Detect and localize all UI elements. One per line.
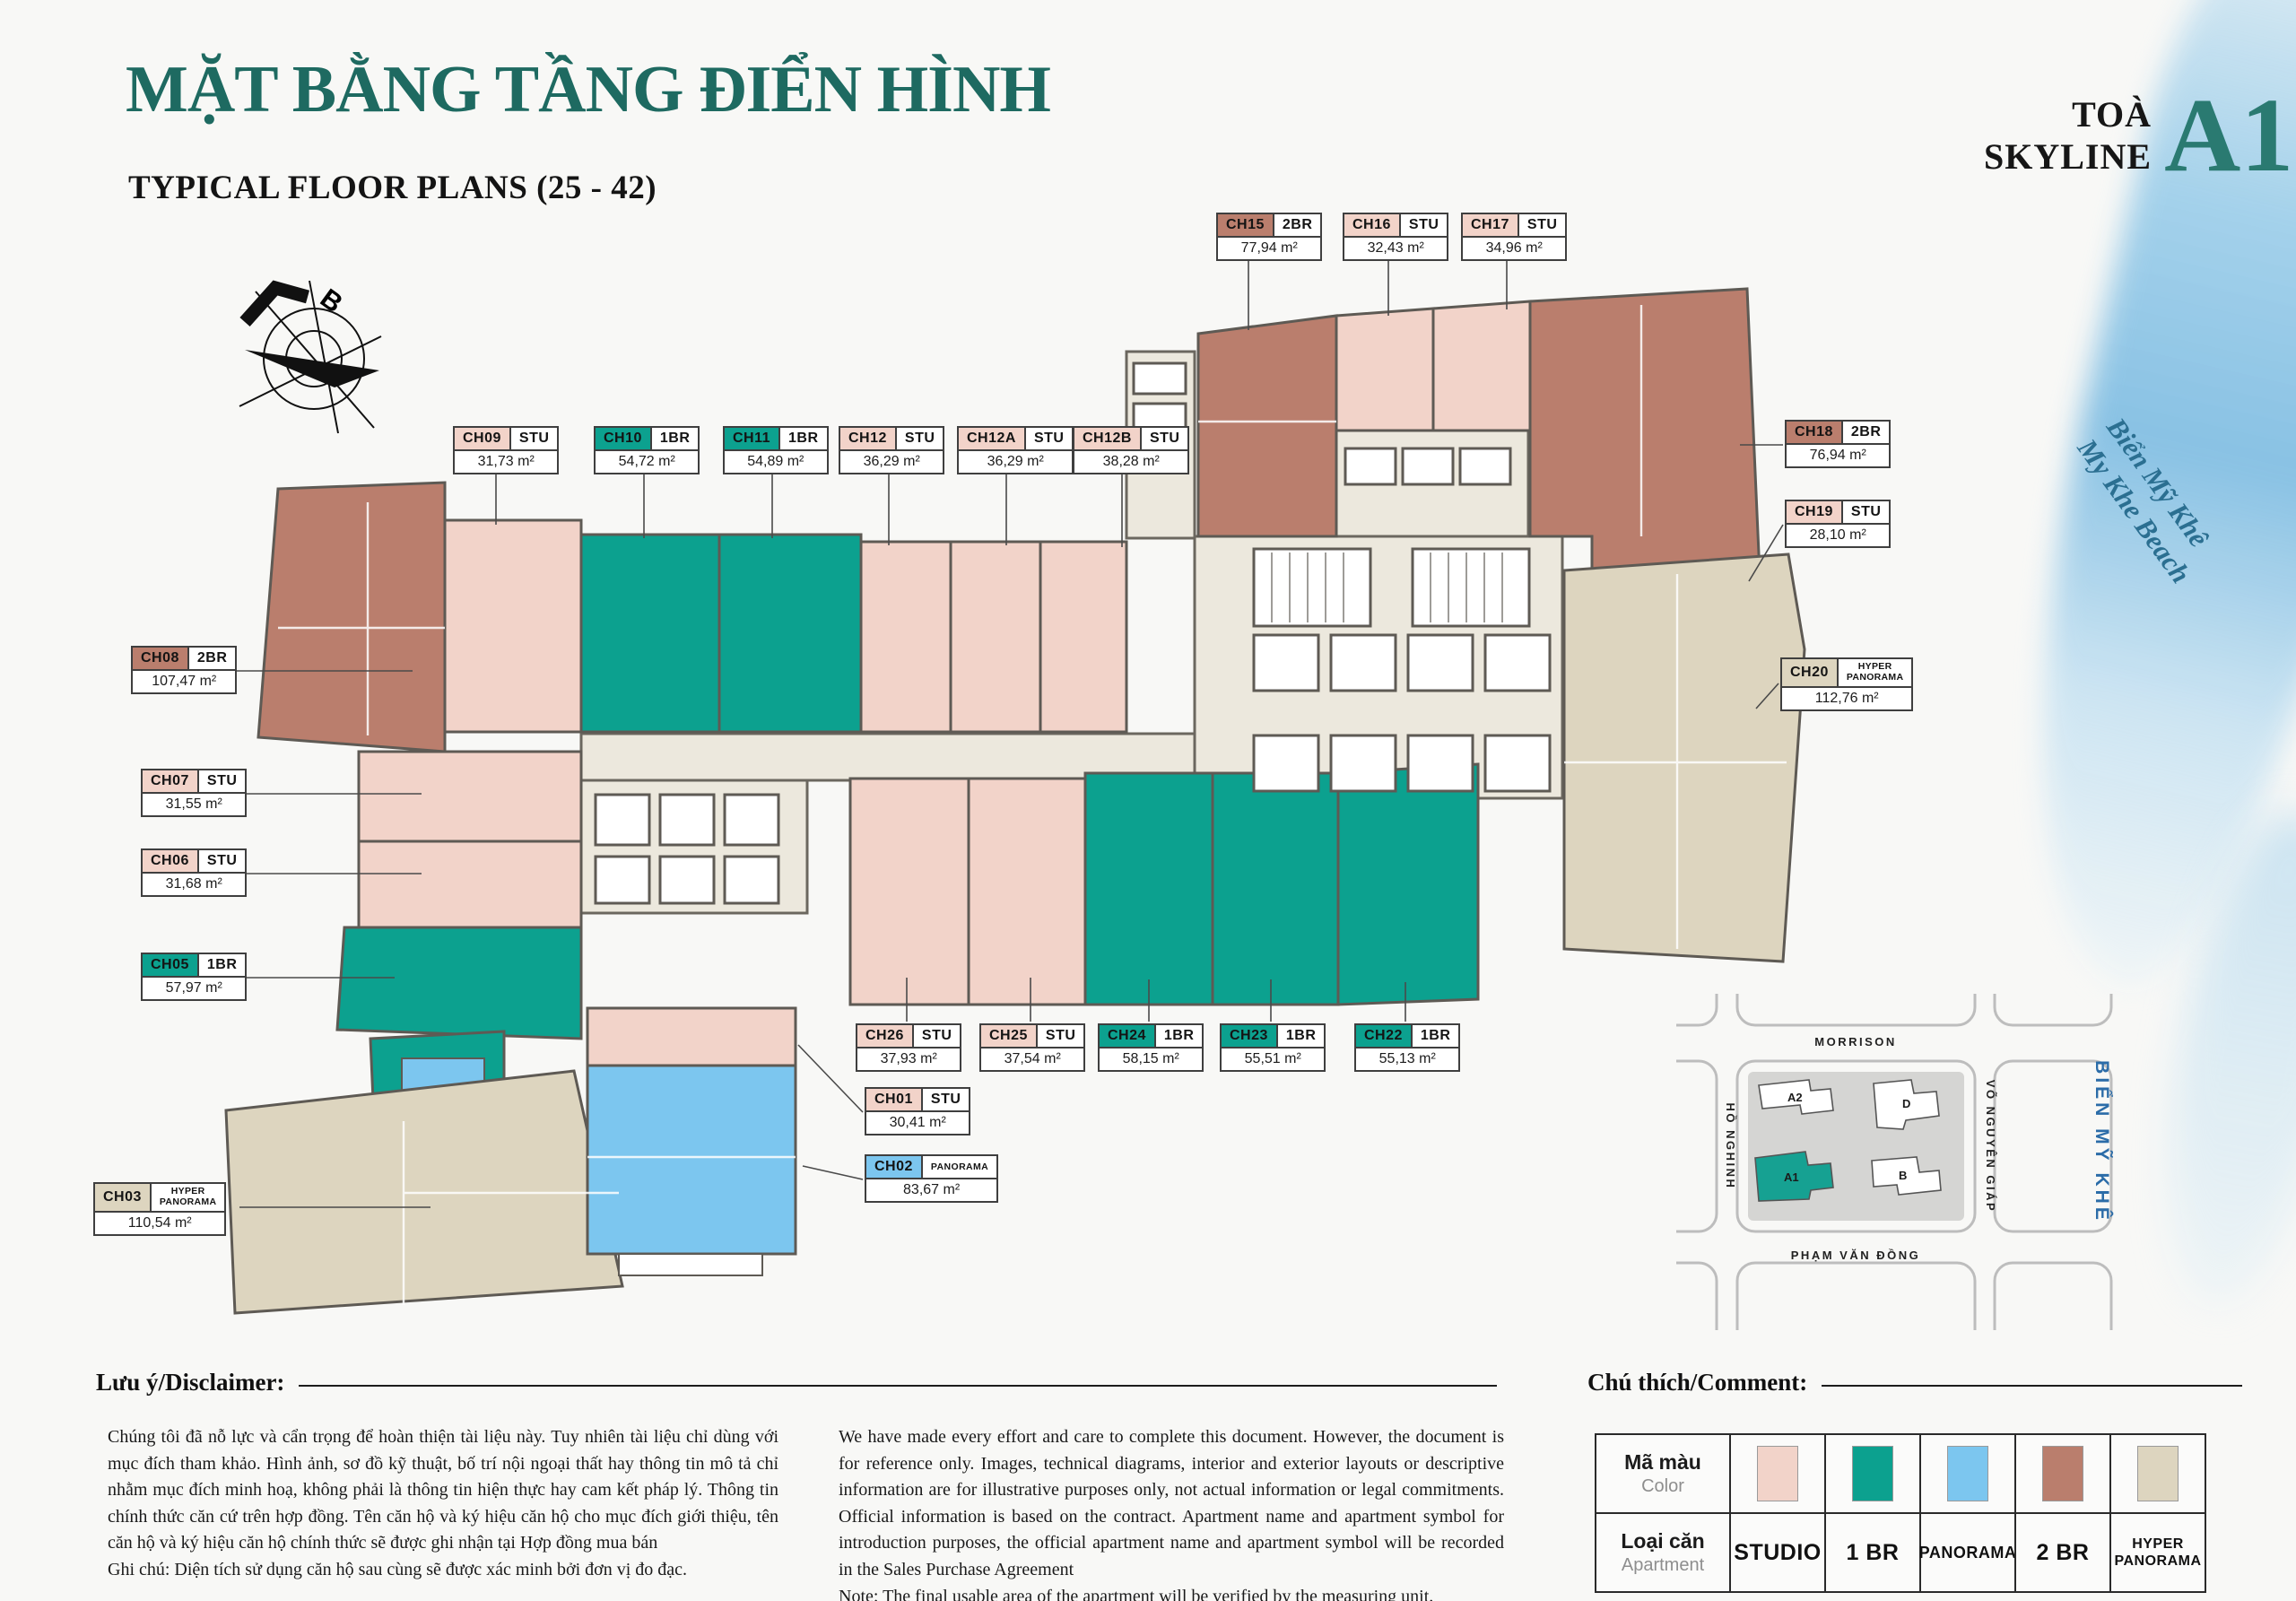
apartment-id: CH18 xyxy=(1787,422,1843,443)
location-minimap: A2 D A1 B MORRISON PHẠM VĂN ĐỒNG HỒ NGHI… xyxy=(1676,994,2125,1330)
legend-swatch-studio xyxy=(1757,1446,1798,1501)
legend-type-hyper: HYPER PANORAMA xyxy=(2109,1514,2205,1591)
unit-ch09 xyxy=(445,520,581,732)
apartment-area: 31,73 m² xyxy=(453,451,559,474)
legend-type-head: Loại căn Apartment xyxy=(1596,1514,1729,1591)
apartment-area: 37,54 m² xyxy=(979,1048,1085,1072)
apartment-area: 57,97 m² xyxy=(141,978,247,1001)
apartment-label-ch06: CH06STU31,68 m² xyxy=(141,848,247,897)
apartment-type: STU xyxy=(199,770,246,792)
apartment-area: 36,29 m² xyxy=(957,451,1074,474)
unit-ch26 xyxy=(850,779,969,1005)
apartment-id: CH12 xyxy=(840,428,897,449)
apartment-type: 2BR xyxy=(1843,422,1890,443)
legend-swatch-panorama xyxy=(1947,1446,1988,1501)
apartment-label-ch16: CH16STU32,43 m² xyxy=(1343,213,1448,261)
apartment-label-ch25: CH25STU37,54 m² xyxy=(979,1023,1085,1072)
apartment-area: 83,67 m² xyxy=(865,1179,998,1203)
apartment-id: CH16 xyxy=(1344,214,1401,236)
legend-type-studio: STUDIO xyxy=(1729,1514,1824,1591)
apartment-id: CH17 xyxy=(1463,214,1519,236)
legend-color-label-en: Color xyxy=(1641,1476,1684,1497)
street-pham-van-dong: PHẠM VĂN ĐỒNG xyxy=(1791,1249,1920,1262)
apartment-type: STU xyxy=(1401,214,1448,236)
apartment-label-ch17: CH17STU34,96 m² xyxy=(1461,213,1567,261)
apartment-id: CH02 xyxy=(866,1156,923,1178)
apartment-label-ch12: CH12STU36,29 m² xyxy=(839,426,944,474)
street-vo-nguyen-giap: VÕ NGUYÊN GIÁP xyxy=(1984,1080,1997,1213)
apartment-area: 38,28 m² xyxy=(1073,451,1189,474)
apartment-label-ch15: CH152BR77,94 m² xyxy=(1216,213,1322,261)
unit-ch07 xyxy=(359,752,581,841)
legend-type-2br: 2 BR xyxy=(2014,1514,2109,1591)
unit-ch15 xyxy=(1198,316,1336,536)
apartment-id: CH23 xyxy=(1222,1025,1278,1047)
apartment-label-ch24: CH241BR58,15 m² xyxy=(1098,1023,1204,1072)
apartment-id: CH15 xyxy=(1218,214,1274,236)
apartment-area: 54,72 m² xyxy=(594,451,700,474)
building-a1-label: A1 xyxy=(1784,1170,1799,1184)
apartment-id: CH01 xyxy=(866,1089,923,1110)
apartment-area: 32,43 m² xyxy=(1343,238,1448,261)
unit-ch17 xyxy=(1433,301,1530,431)
apartment-label-ch11: CH111BR54,89 m² xyxy=(723,426,829,474)
apartment-label-ch09: CH09STU31,73 m² xyxy=(453,426,559,474)
apartment-type: STU xyxy=(914,1025,961,1047)
apartment-area: 112,76 m² xyxy=(1780,688,1913,711)
apartment-id: CH12B xyxy=(1074,428,1142,449)
legend-swatch-hyper xyxy=(2137,1446,2179,1501)
apartment-area: 55,13 m² xyxy=(1354,1048,1460,1072)
apartment-type: 1BR xyxy=(780,428,827,449)
unit-ch16 xyxy=(1336,309,1433,431)
street-ho-nghinh: HỒ NGHINH xyxy=(1724,1103,1737,1190)
legend-swatch-1br xyxy=(1852,1446,1893,1501)
apartment-type: STU xyxy=(511,428,558,449)
apartment-id: CH06 xyxy=(143,850,199,872)
apartment-type: 1BR xyxy=(652,428,699,449)
unit-ch01 xyxy=(587,1008,796,1066)
disclaimer-note-en: Note: The final usable area of the apart… xyxy=(839,1584,1504,1601)
apartment-type: STU xyxy=(1142,428,1188,449)
apartment-label-ch12b: CH12BSTU38,28 m² xyxy=(1073,426,1189,474)
sea-label: BIỂN MỸ KHÊ xyxy=(2092,1060,2113,1223)
legend-type-label-en: Apartment xyxy=(1622,1555,1704,1576)
unit-ch12b xyxy=(1040,542,1126,732)
floor-plan-sheet: MẶT BẰNG TẦNG ĐIỂN HÌNH TYPICAL FLOOR PL… xyxy=(0,0,2296,1601)
unit-ch12a xyxy=(951,542,1040,732)
unit-ch02 xyxy=(587,1066,796,1254)
unit-ch02-balcony xyxy=(619,1254,762,1275)
unit-ch12 xyxy=(861,542,951,732)
apartment-type: STU xyxy=(923,1089,970,1110)
unit-ch05 xyxy=(337,927,581,1039)
legend-swatch-cell xyxy=(2014,1435,2109,1512)
disclaimer-header: Lưu ý/Disclaimer: xyxy=(96,1369,284,1397)
building-b-label: B xyxy=(1899,1169,1907,1182)
legend-swatch-cell xyxy=(1824,1435,1919,1512)
disclaimer-text-vi: Chúng tôi đã nỗ lực và cẩn trọng để hoàn… xyxy=(108,1424,778,1584)
apartment-type: STU xyxy=(1026,428,1073,449)
apartment-area: 55,51 m² xyxy=(1220,1048,1326,1072)
unit-ch06 xyxy=(359,841,581,927)
legend-type-1br: 1 BR xyxy=(1824,1514,1919,1591)
apartment-type: PANORAMA xyxy=(923,1156,996,1178)
apartment-area: 36,29 m² xyxy=(839,451,944,474)
apartment-label-ch22: CH221BR55,13 m² xyxy=(1354,1023,1460,1072)
apartment-label-ch07: CH07STU31,55 m² xyxy=(141,769,247,817)
apartment-label-ch10: CH101BR54,72 m² xyxy=(594,426,700,474)
legend-color-row: Mã màu Color xyxy=(1596,1435,2205,1512)
apartment-id: CH03 xyxy=(95,1184,152,1211)
apartment-id: CH10 xyxy=(596,428,652,449)
apartment-area: 107,47 m² xyxy=(131,671,237,694)
apartment-id: CH25 xyxy=(981,1025,1038,1047)
apartment-type: 1BR xyxy=(1156,1025,1203,1047)
apartment-type: HYPER PANORAMA xyxy=(1839,659,1911,686)
apartment-label-ch23: CH231BR55,51 m² xyxy=(1220,1023,1326,1072)
legend-type-row: Loại căn Apartment STUDIO1 BRPANORAMA2 B… xyxy=(1596,1512,2205,1591)
apartment-label-ch05: CH051BR57,97 m² xyxy=(141,953,247,1001)
apartment-label-ch02: CH02PANORAMA83,67 m² xyxy=(865,1154,998,1203)
legend-table: Mã màu Color Loại căn Apartment STUDIO1 … xyxy=(1595,1433,2206,1593)
apartment-id: CH05 xyxy=(143,954,199,976)
unit-ch25 xyxy=(969,779,1085,1005)
disclaimer-header-row: Lưu ý/Disclaimer: xyxy=(96,1369,1497,1397)
apartment-label-ch19: CH19STU28,10 m² xyxy=(1785,500,1891,548)
apartment-area: 76,94 m² xyxy=(1785,445,1891,468)
apartment-id: CH08 xyxy=(133,648,189,669)
apartment-id: CH09 xyxy=(455,428,511,449)
legend-color-label-vi: Mã màu xyxy=(1624,1450,1701,1475)
floor-plan-drawing xyxy=(0,0,2296,1601)
apartment-label-ch18: CH182BR76,94 m² xyxy=(1785,420,1891,468)
disclaimer-note-vi: Ghi chú: Diện tích sử dụng căn hộ sau cù… xyxy=(108,1557,778,1584)
apartment-type: 2BR xyxy=(1274,214,1321,236)
apartment-type: STU xyxy=(1038,1025,1084,1047)
disclaimer-text-en: We have made every effort and care to co… xyxy=(839,1424,1504,1601)
unit-ch18 xyxy=(1530,289,1760,585)
apartment-id: CH20 xyxy=(1782,659,1839,686)
apartment-area: 34,96 m² xyxy=(1461,238,1567,261)
apartment-area: 54,89 m² xyxy=(723,451,829,474)
apartment-area: 37,93 m² xyxy=(856,1048,961,1072)
unit-ch22 xyxy=(1338,764,1478,1005)
building-d-label: D xyxy=(1902,1097,1910,1110)
apartment-id: CH24 xyxy=(1100,1025,1156,1047)
apartment-type: 1BR xyxy=(199,954,246,976)
apartment-id: CH19 xyxy=(1787,501,1843,523)
apartment-type: HYPER PANORAMA xyxy=(152,1184,224,1211)
legend-swatch-2br xyxy=(2042,1446,2083,1501)
disclaimer-body-en: We have made every effort and care to co… xyxy=(839,1424,1504,1584)
apartment-id: CH11 xyxy=(725,428,780,449)
disclaimer-rule xyxy=(299,1385,1497,1387)
street-morrison: MORRISON xyxy=(1814,1035,1897,1048)
apartment-label-ch26: CH26STU37,93 m² xyxy=(856,1023,961,1072)
apartment-label-ch12a: CH12ASTU36,29 m² xyxy=(957,426,1074,474)
unit-ch20 xyxy=(1564,554,1805,961)
apartment-area: 77,94 m² xyxy=(1216,238,1322,261)
legend-color-head: Mã màu Color xyxy=(1596,1435,1729,1512)
unit-ch10 xyxy=(581,535,719,732)
legend-rule xyxy=(1822,1385,2242,1387)
apartment-id: CH26 xyxy=(857,1025,914,1047)
apartment-area: 31,68 m² xyxy=(141,874,247,897)
apartment-area: 58,15 m² xyxy=(1098,1048,1204,1072)
unit-ch08 xyxy=(258,483,445,752)
apartment-area: 31,55 m² xyxy=(141,794,247,817)
apartment-label-ch03: CH03HYPER PANORAMA110,54 m² xyxy=(93,1182,226,1236)
unit-ch11 xyxy=(719,535,861,732)
legend-header: Chú thích/Comment: xyxy=(1587,1369,1807,1397)
apartment-id: CH22 xyxy=(1356,1025,1413,1047)
apartment-type: STU xyxy=(897,428,944,449)
legend-swatch-cell xyxy=(1729,1435,1824,1512)
apartment-id: CH07 xyxy=(143,770,199,792)
apartment-type: STU xyxy=(199,850,246,872)
apartment-type: STU xyxy=(1519,214,1566,236)
unit-ch23 xyxy=(1213,773,1338,1005)
apartment-label-ch20: CH20HYPER PANORAMA112,76 m² xyxy=(1780,657,1913,711)
legend-type-panorama: PANORAMA xyxy=(1919,1514,2014,1591)
apartment-label-ch08: CH082BR107,47 m² xyxy=(131,646,237,694)
legend-swatch-cell xyxy=(1919,1435,2014,1512)
apartment-type: 1BR xyxy=(1413,1025,1459,1047)
legend-swatch-cell xyxy=(2109,1435,2205,1512)
unit-ch24 xyxy=(1085,773,1213,1005)
apartment-area: 28,10 m² xyxy=(1785,525,1891,548)
apartment-area: 30,41 m² xyxy=(865,1112,970,1135)
building-a2-label: A2 xyxy=(1787,1091,1803,1104)
apartment-area: 110,54 m² xyxy=(93,1213,226,1236)
disclaimer-body-vi: Chúng tôi đã nỗ lực và cẩn trọng để hoàn… xyxy=(108,1424,778,1557)
apartment-label-ch01: CH01STU30,41 m² xyxy=(865,1087,970,1135)
apartment-id: CH12A xyxy=(959,428,1026,449)
apartment-type: STU xyxy=(1843,501,1890,523)
legend-header-row: Chú thích/Comment: xyxy=(1587,1369,2242,1397)
apartment-type: 1BR xyxy=(1278,1025,1325,1047)
legend-type-label-vi: Loại căn xyxy=(1621,1529,1704,1553)
apartment-type: 2BR xyxy=(189,648,236,669)
